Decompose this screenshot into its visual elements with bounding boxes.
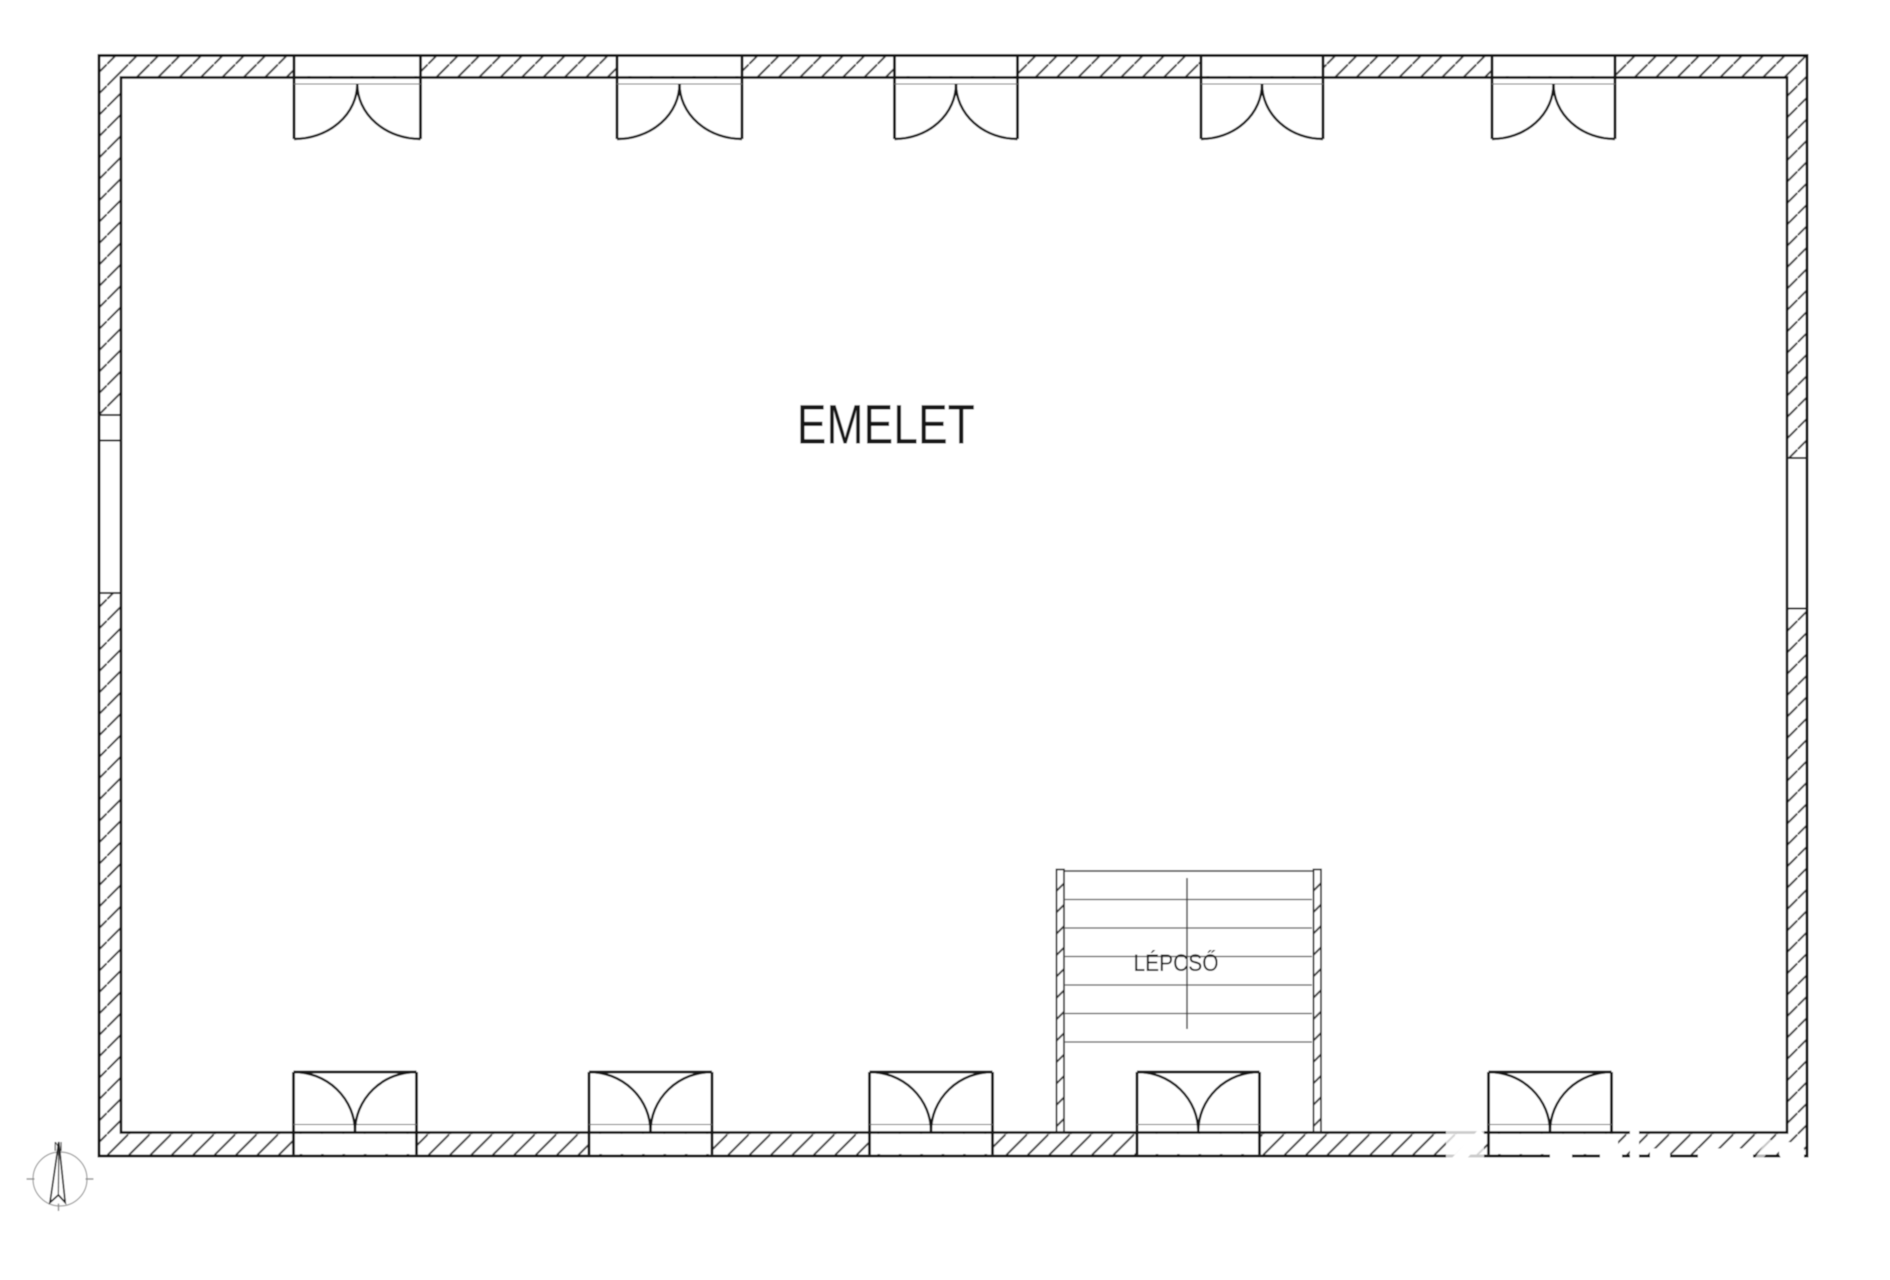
svg-text:LÉPCSŐ: LÉPCSŐ: [1134, 950, 1219, 977]
svg-text:EMELET: EMELET: [797, 393, 975, 455]
svg-text:N: N: [54, 1140, 63, 1154]
